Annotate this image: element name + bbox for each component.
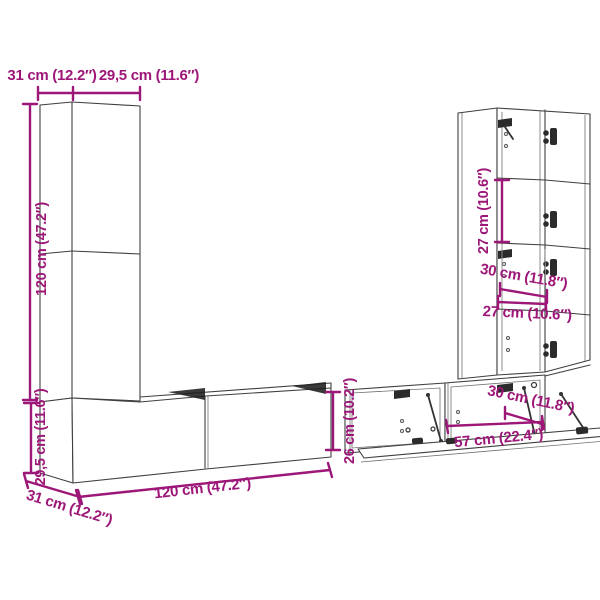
knob-icon <box>431 427 435 431</box>
dim-label-compartment-height: 27 cm (10.6″) <box>476 168 492 255</box>
dim-label-top-width: 29,5 cm (11.6″) <box>99 67 200 84</box>
dim-label-open-unit-height: 26 cm (10.2″) <box>342 378 358 465</box>
dim-label-top-depth: 31 cm (12.2″) <box>7 67 96 84</box>
bench-front <box>72 388 331 483</box>
stay-pivot <box>559 392 563 396</box>
shelf-hole <box>505 133 508 136</box>
furniture-dimension-diagram: 31 cm (12.2″) 29,5 cm (11.6″) 120 cm (47… <box>0 0 600 600</box>
knob-icon <box>406 428 410 432</box>
dim-label-bench-height: 29,5 cm (11.6″) <box>33 388 49 485</box>
stay-pivot <box>426 393 430 397</box>
dim-top: 31 cm (12.2″) 29,5 cm (11.6″) <box>7 67 199 100</box>
dim-bench-height: 29,5 cm (11.6″) <box>24 388 49 485</box>
knob-icon <box>532 383 537 388</box>
dim-label-bench-width: 120 cm (47.2″) <box>153 475 252 503</box>
shelf-hole <box>505 145 508 148</box>
dim-label-left-height: 120 cm (47.2″) <box>34 202 50 296</box>
shelf-hole <box>401 430 404 433</box>
shelf-hole <box>401 420 404 423</box>
shelf-hole <box>457 411 460 414</box>
left-tall-cabinet <box>40 102 140 402</box>
right-cabinet-body <box>497 108 590 375</box>
shelf-hole <box>507 337 510 340</box>
diagram-page: 31 cm (12.2″) 29,5 cm (11.6″) 120 cm (47… <box>0 0 600 600</box>
shelf-hole <box>507 349 510 352</box>
shelf-hole <box>457 421 460 424</box>
